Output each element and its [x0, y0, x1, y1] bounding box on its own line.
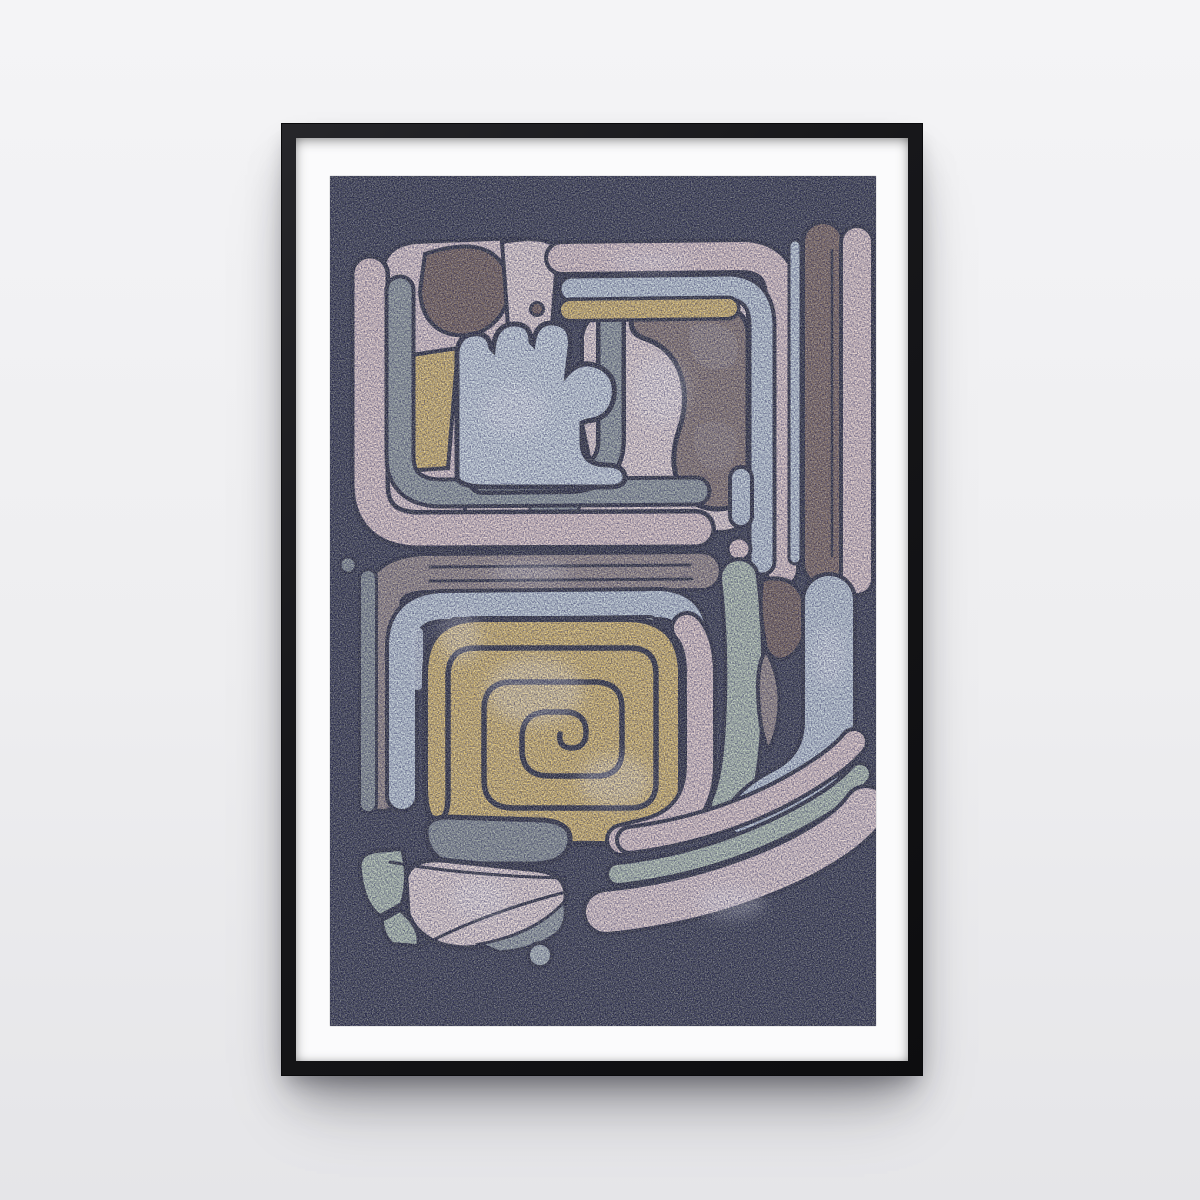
wall: [0, 0, 1200, 1200]
poster-frame: [281, 123, 923, 1076]
grain-dark: [330, 176, 876, 1026]
abstract-artwork-svg: [330, 176, 876, 1026]
poster-artwork: [330, 176, 876, 1026]
mat-border: [296, 138, 908, 1061]
